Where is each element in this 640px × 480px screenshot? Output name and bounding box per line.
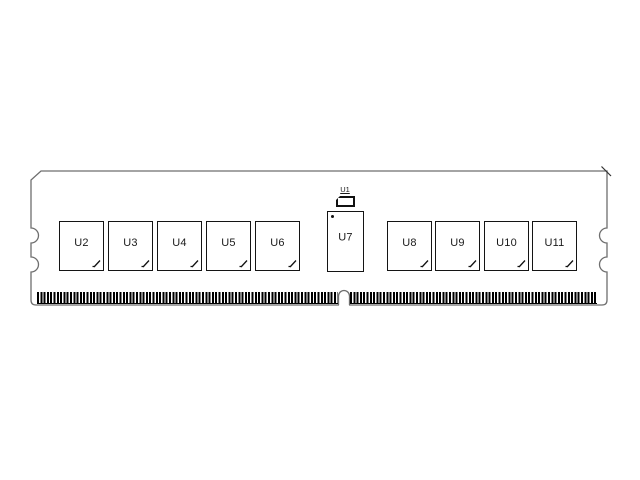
- pin1-mark-icon: [468, 259, 477, 268]
- edge-connector-pins-right: [350, 292, 597, 304]
- component-u1: [336, 196, 355, 207]
- chip-u9: U9: [435, 221, 480, 271]
- chip-u2: U2: [59, 221, 104, 271]
- pin1-mark-icon: [190, 259, 199, 268]
- chip-u10-label: U10: [496, 237, 517, 249]
- chip-u5-label: U5: [221, 237, 235, 249]
- chip-u9-label: U9: [450, 237, 464, 249]
- pin1-mark-icon: [239, 259, 248, 268]
- pin1-mark-icon: [420, 259, 429, 268]
- chip-u11: U11: [532, 221, 577, 271]
- chip-u7: U7: [327, 211, 364, 272]
- pin1-mark-icon: [565, 259, 574, 268]
- pin1-mark-icon: [288, 259, 297, 268]
- key-notch: [339, 291, 350, 306]
- chip-u4: U4: [157, 221, 202, 271]
- chip-u8-label: U8: [402, 237, 416, 249]
- chip-u5: U5: [206, 221, 251, 271]
- chip-u8: U8: [387, 221, 432, 271]
- chip-u10: U10: [484, 221, 529, 271]
- chip-u3: U3: [108, 221, 153, 271]
- component-u1-label: U1: [333, 185, 357, 194]
- chip-u3-label: U3: [123, 237, 137, 249]
- chip-u2-label: U2: [74, 237, 88, 249]
- pin1-dot-icon: [331, 215, 334, 218]
- chip-u6: U6: [255, 221, 300, 271]
- chip-u7-label: U7: [338, 231, 352, 243]
- edge-connector-pins-left: [37, 292, 338, 304]
- chip-u11-label: U11: [545, 237, 565, 249]
- pin1-mark-icon: [517, 259, 526, 268]
- chip-u4-label: U4: [172, 237, 186, 249]
- chip-u6-label: U6: [270, 237, 284, 249]
- memory-module-diagram: U1 U2 U3 U4 U5 U6 U7 U8 U9: [0, 0, 640, 480]
- pin1-mark-icon: [92, 259, 101, 268]
- pin1-mark-icon: [141, 259, 150, 268]
